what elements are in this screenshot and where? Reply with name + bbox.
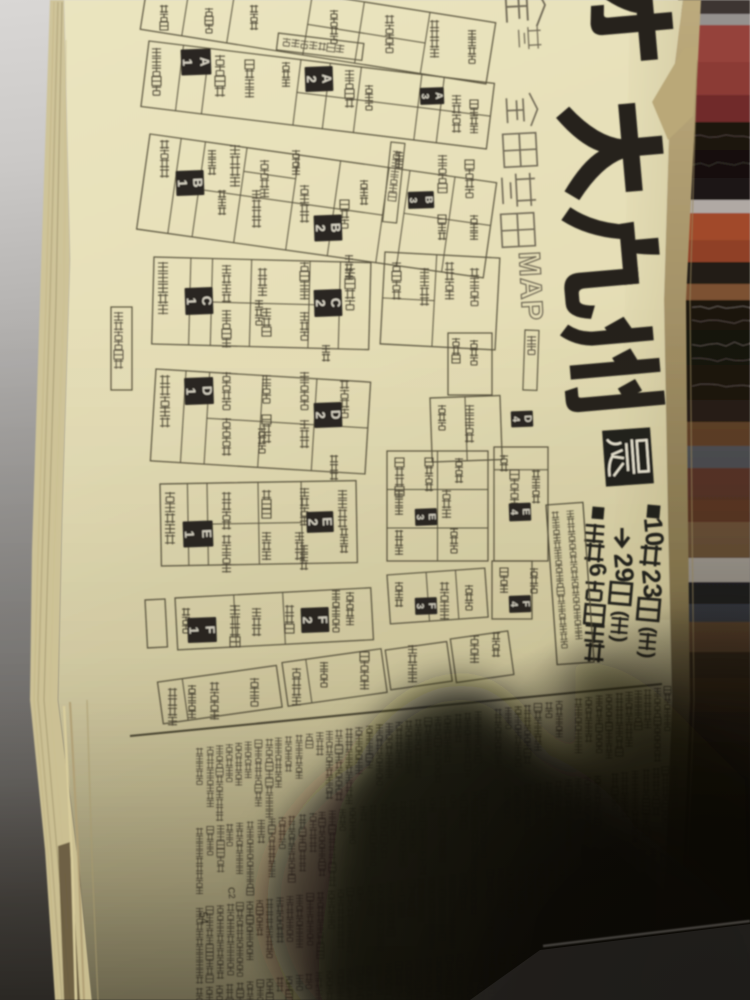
svg-text:A: A — [319, 74, 334, 85]
svg-text:3: 3 — [419, 93, 430, 99]
svg-text:3: 3 — [407, 197, 418, 203]
svg-text:2: 2 — [304, 75, 319, 83]
svg-text:B: B — [328, 223, 343, 233]
svg-text:B: B — [190, 178, 205, 188]
svg-text:1: 1 — [175, 179, 190, 187]
svg-text:A: A — [197, 57, 212, 68]
svg-text:1: 1 — [180, 58, 195, 66]
svg-text:2: 2 — [313, 224, 328, 232]
svg-text:B: B — [423, 196, 434, 204]
svg-text:A: A — [433, 92, 444, 100]
